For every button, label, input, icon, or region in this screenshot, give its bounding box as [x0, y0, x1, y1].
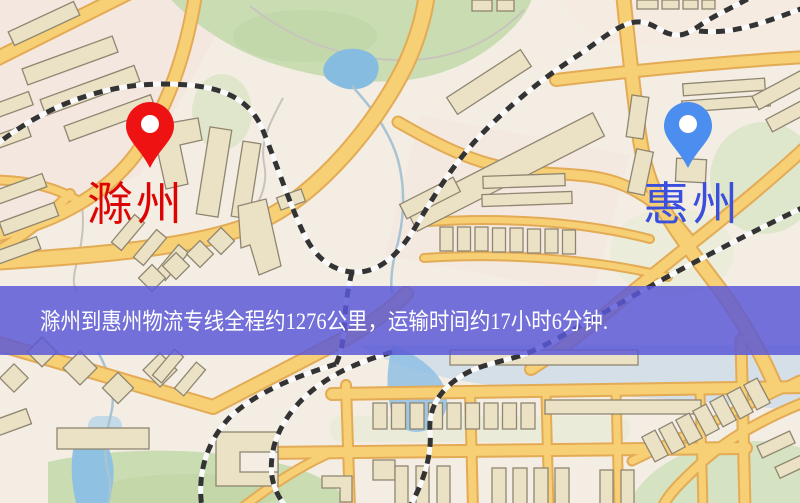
route-map-image: 滁州 惠州 滁州到惠州物流专线全程约1276公里，运输时间约17小时6分钟.	[0, 0, 800, 503]
origin-pin-hole	[141, 115, 159, 133]
destination-label: 惠州	[643, 179, 741, 230]
origin-label: 滁州	[87, 179, 185, 230]
destination-pin-hole	[679, 115, 697, 133]
banner-text: 滁州到惠州物流专线全程约1276公里，运输时间约17小时6分钟.	[40, 309, 608, 334]
route-info-banner: 滁州到惠州物流专线全程约1276公里，运输时间约17小时6分钟.	[0, 286, 800, 355]
map-canvas: 滁州 惠州 滁州到惠州物流专线全程约1276公里，运输时间约17小时6分钟.	[0, 0, 800, 503]
